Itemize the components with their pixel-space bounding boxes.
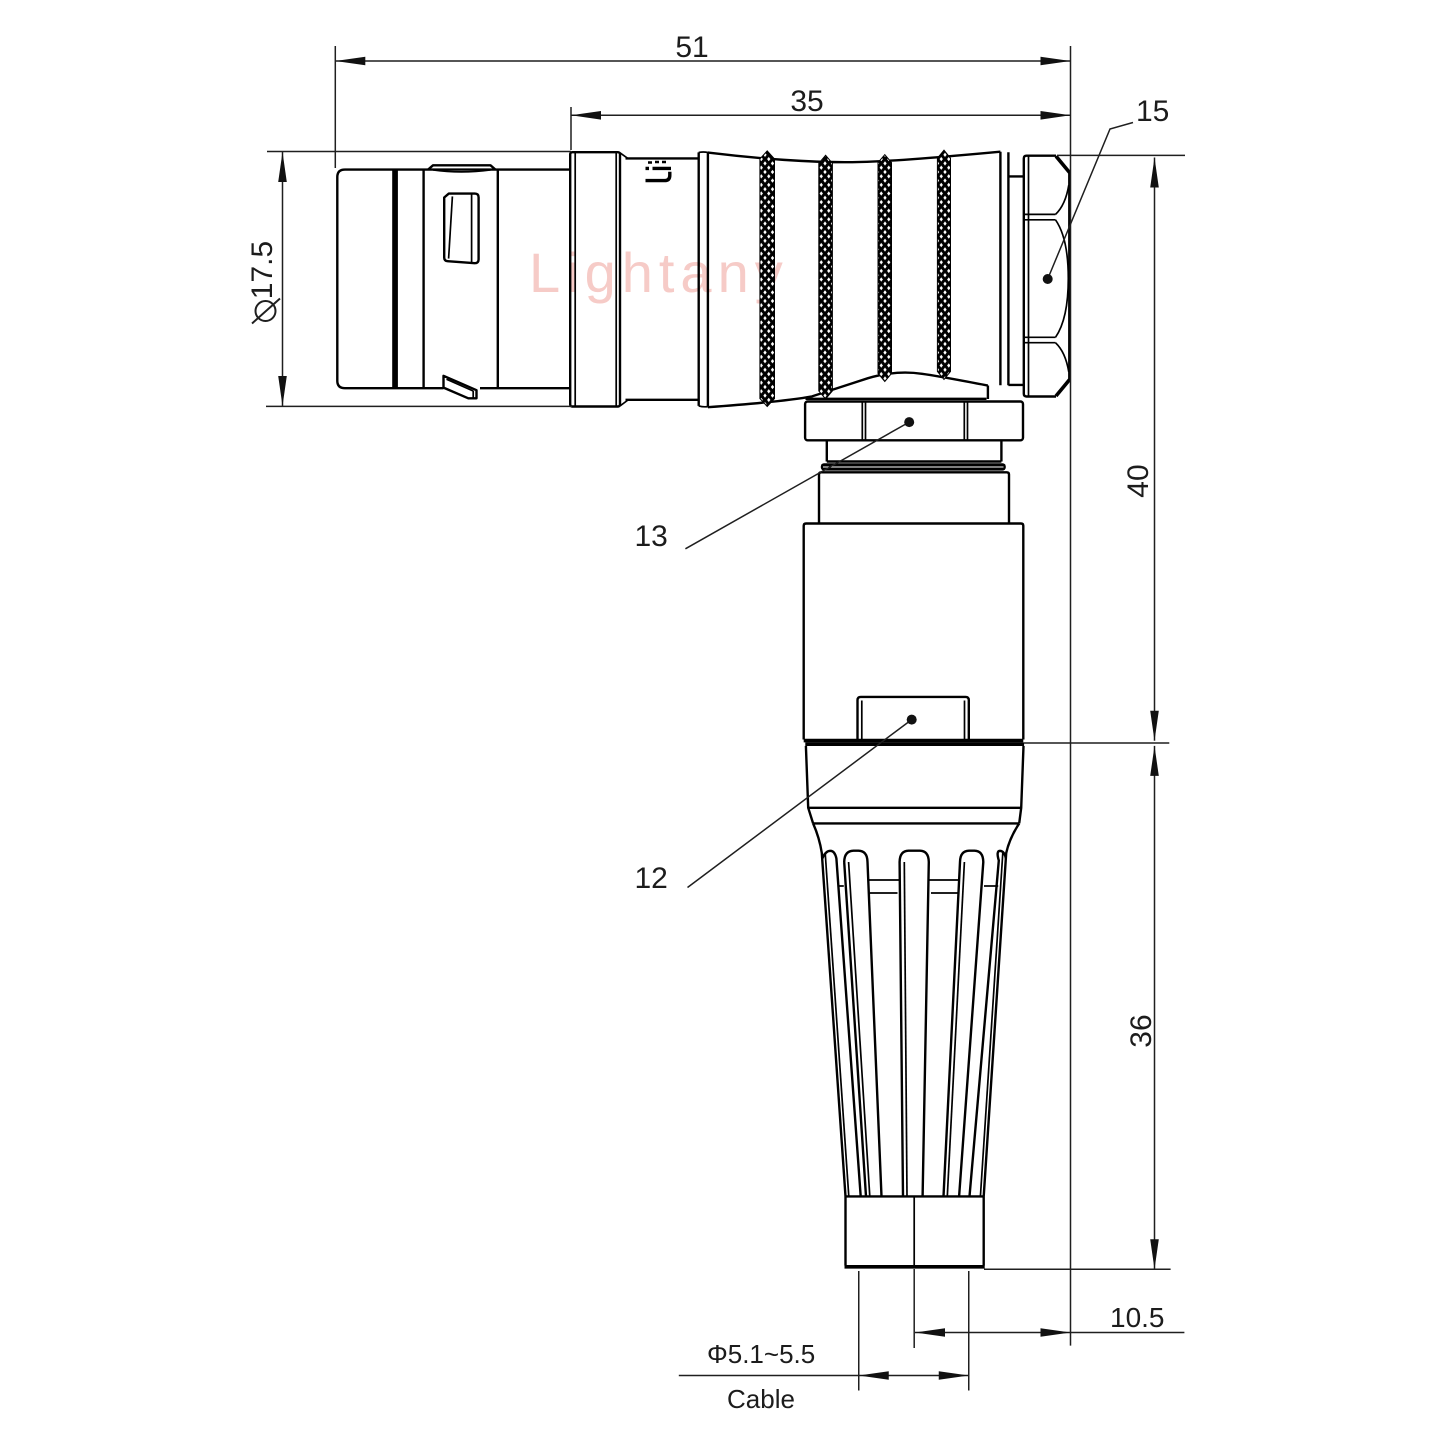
svg-text:Φ5.1~5.5: Φ5.1~5.5: [707, 1339, 815, 1369]
svg-text:40: 40: [1122, 464, 1155, 497]
svg-text:13: 13: [635, 520, 668, 553]
svg-text:12: 12: [635, 862, 668, 895]
svg-text:51: 51: [675, 31, 708, 64]
svg-text:10.5: 10.5: [1110, 1302, 1165, 1333]
svg-text:15: 15: [1136, 95, 1169, 128]
svg-text:Lightany: Lightany: [529, 241, 789, 304]
svg-text:Cable: Cable: [727, 1384, 795, 1414]
svg-text:36: 36: [1125, 1014, 1158, 1047]
svg-text:35: 35: [790, 85, 823, 118]
svg-text:17.5: 17.5: [246, 241, 279, 299]
